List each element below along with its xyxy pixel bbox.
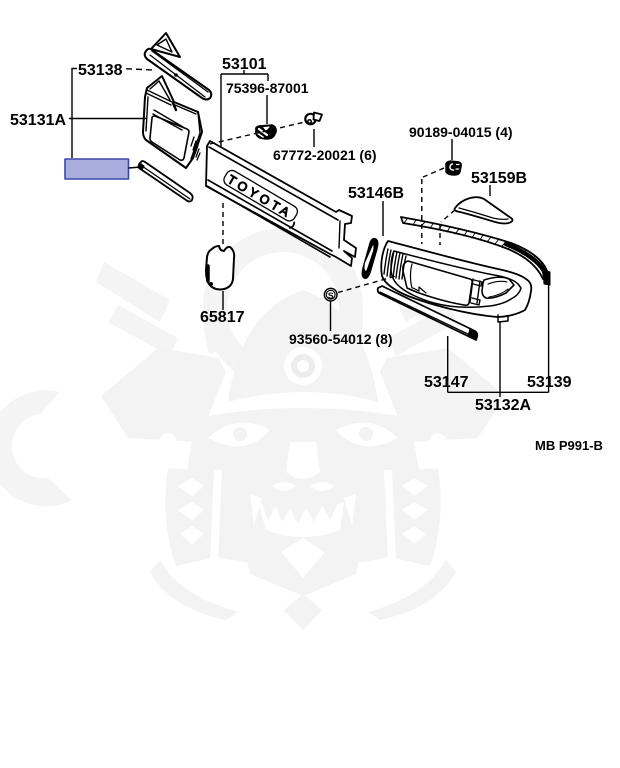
svg-text:53132A: 53132A: [475, 397, 531, 414]
svg-text:53131A: 53131A: [10, 112, 66, 129]
svg-text:53101: 53101: [222, 56, 267, 73]
svg-text:53159B: 53159B: [471, 170, 527, 187]
svg-text:53147: 53147: [424, 374, 469, 391]
svg-text:75396-87001: 75396-87001: [226, 80, 309, 96]
svg-text:65817: 65817: [200, 309, 245, 326]
svg-text:MB P991-B: MB P991-B: [535, 438, 603, 453]
svg-text:53139: 53139: [527, 374, 572, 391]
svg-text:67772-20021 (6): 67772-20021 (6): [273, 147, 377, 163]
svg-text:93560-54012 (8): 93560-54012 (8): [289, 331, 393, 347]
svg-text:S: S: [328, 290, 334, 300]
svg-text:53146B: 53146B: [348, 185, 404, 202]
svg-text:53138: 53138: [78, 62, 123, 79]
svg-text:90189-04015 (4): 90189-04015 (4): [409, 124, 513, 140]
